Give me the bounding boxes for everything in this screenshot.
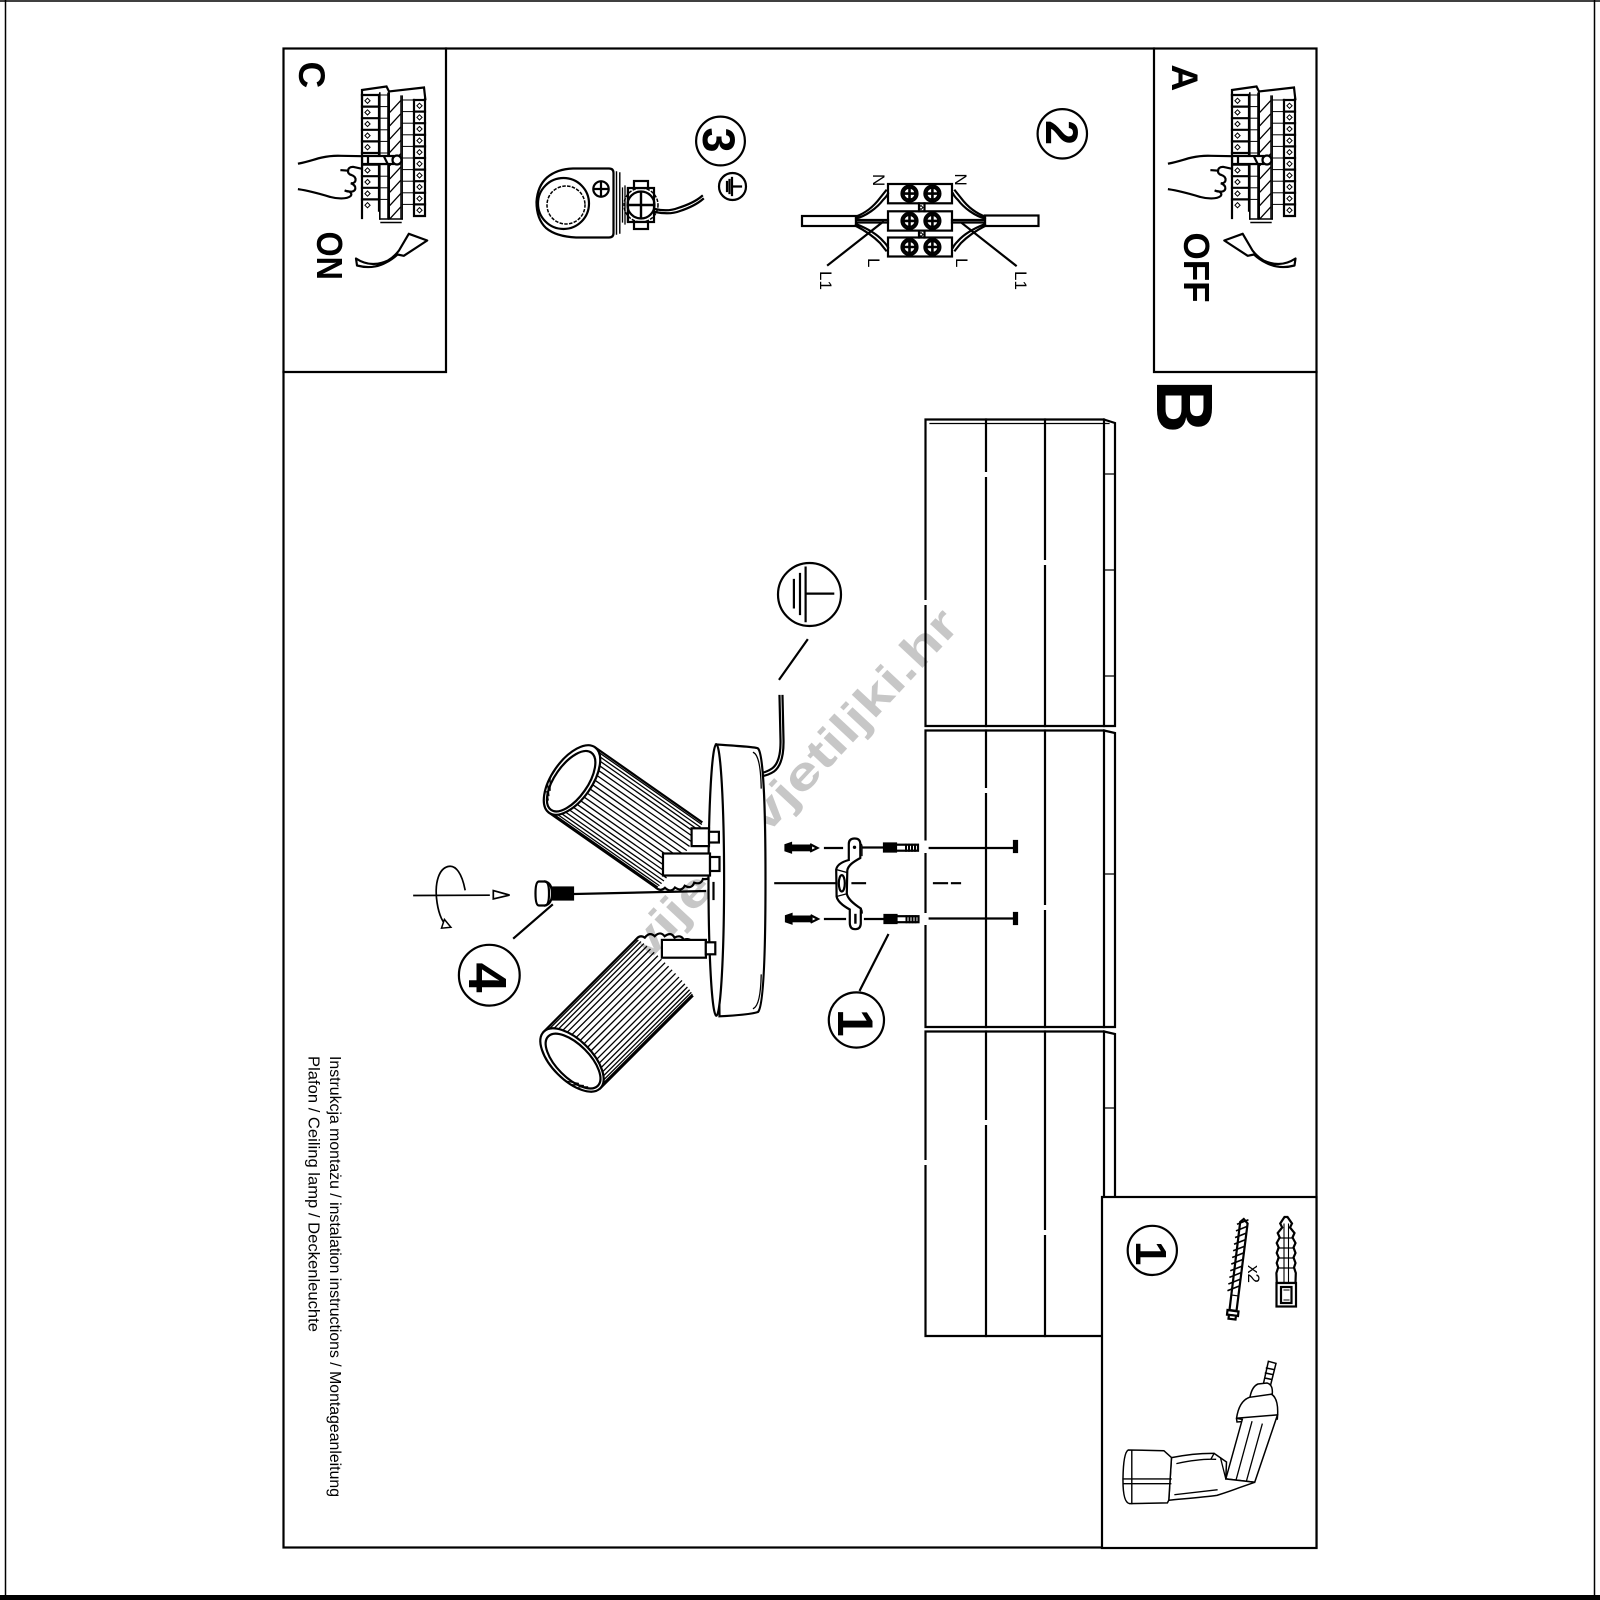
svg-text:N: N — [951, 174, 970, 186]
svg-text:L1: L1 — [1011, 271, 1030, 290]
svg-text:N: N — [869, 174, 888, 186]
svg-text:Plafon / Ceiling lamp / Decken: Plafon / Ceiling lamp / Deckenleuchte — [305, 1056, 322, 1332]
svg-text:x2: x2 — [1244, 1265, 1263, 1283]
svg-text:4: 4 — [457, 963, 517, 993]
svg-text:1: 1 — [1126, 1241, 1175, 1265]
svg-text:L1: L1 — [816, 271, 835, 290]
svg-text:L: L — [952, 258, 971, 267]
svg-text:ON: ON — [309, 232, 350, 281]
svg-text:A: A — [1164, 65, 1205, 92]
svg-text:C: C — [291, 62, 332, 89]
svg-text:2: 2 — [1036, 120, 1087, 145]
svg-text:3: 3 — [693, 128, 744, 153]
svg-text:Instrukcja montażu / instalati: Instrukcja montażu / instalation instruc… — [326, 1056, 343, 1497]
svg-text:L: L — [864, 258, 883, 267]
svg-text:B: B — [1140, 380, 1229, 433]
svg-text:1: 1 — [827, 1009, 883, 1037]
svg-text:OFF: OFF — [1176, 233, 1217, 303]
